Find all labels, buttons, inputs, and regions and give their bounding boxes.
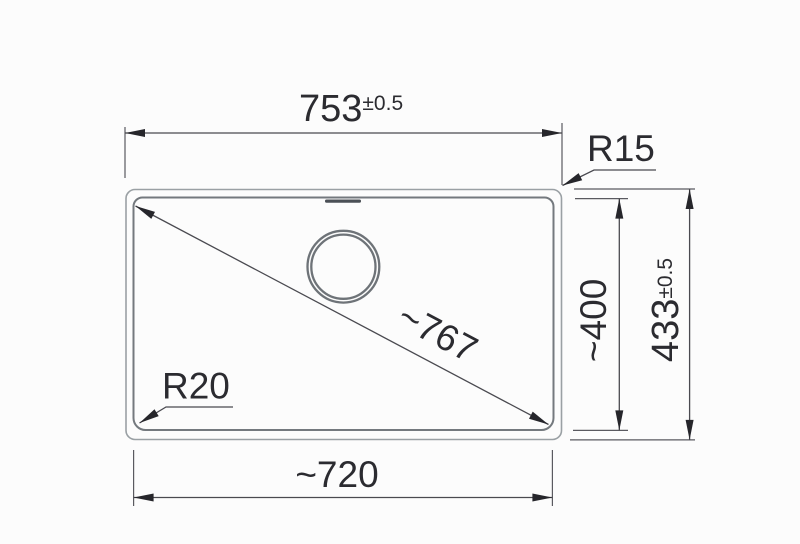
svg-text:~400: ~400 (573, 279, 614, 362)
svg-text:R15: R15 (587, 128, 655, 169)
svg-text:R20: R20 (162, 366, 230, 407)
svg-text:~720: ~720 (295, 454, 378, 495)
